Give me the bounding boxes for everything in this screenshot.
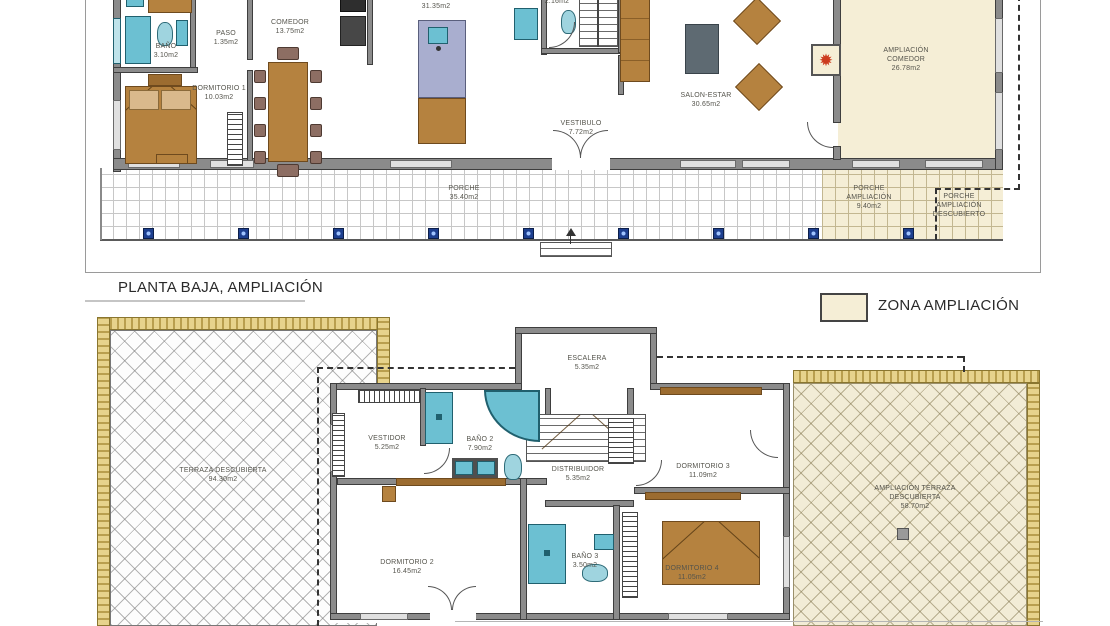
headboard bbox=[396, 478, 506, 486]
shower-drain bbox=[544, 550, 550, 556]
linen-closet bbox=[608, 418, 634, 464]
room-label-porche-ampliacion: PORCHE AMPLIACIÓN9.40m2 bbox=[836, 184, 902, 211]
rug bbox=[685, 24, 719, 74]
room-label-paso: PASO1.35m2 bbox=[200, 29, 252, 47]
entry-arrow-stem bbox=[570, 236, 571, 244]
room-label-vestibulo: VESTIBULO7.72m2 bbox=[536, 119, 626, 137]
porch-column bbox=[238, 228, 249, 239]
wall bbox=[515, 327, 522, 387]
chair bbox=[310, 124, 322, 137]
window bbox=[995, 92, 1003, 150]
nightstand bbox=[382, 486, 396, 502]
room-label-bano: BAÑO3.10m2 bbox=[140, 42, 192, 60]
window bbox=[113, 100, 121, 150]
wall bbox=[515, 327, 657, 334]
room-label-terraza: TERRAZA DESCUBIERTA94.30m2 bbox=[146, 466, 300, 484]
headboard bbox=[660, 387, 762, 395]
room-label-bano2: BAÑO 27.90m2 bbox=[452, 435, 508, 453]
terrace-balustrade bbox=[793, 370, 1040, 383]
entry-arrow-icon bbox=[566, 228, 576, 236]
room-label-comedor: COMEDOR13.75m2 bbox=[254, 18, 326, 36]
room-label-aseo: 2.16m2 bbox=[536, 0, 578, 6]
island-tap bbox=[436, 46, 441, 51]
porch-column bbox=[808, 228, 819, 239]
chair bbox=[310, 97, 322, 110]
chair bbox=[310, 151, 322, 164]
window bbox=[390, 160, 452, 168]
bed-partial bbox=[148, 0, 192, 13]
wall bbox=[541, 0, 547, 55]
ampliacion-dashed-line bbox=[963, 356, 965, 372]
ampliacion-dashed-line bbox=[657, 356, 963, 358]
bench bbox=[156, 154, 188, 164]
wall bbox=[541, 48, 624, 54]
room-label-dormitorio1: DORMITORIO 110.03m2 bbox=[180, 84, 258, 102]
wall bbox=[545, 500, 634, 507]
window bbox=[742, 160, 790, 168]
porch-column bbox=[618, 228, 629, 239]
bath-fixture bbox=[126, 0, 144, 7]
window bbox=[113, 18, 121, 64]
room-label-cocina-comedor: COCINA-COMEDOR31.35m2 bbox=[390, 0, 482, 11]
ampliacion-dashed-line bbox=[1018, 0, 1020, 190]
window bbox=[925, 160, 983, 168]
ampliacion-dashed-line bbox=[317, 367, 319, 626]
chair bbox=[277, 47, 299, 60]
room-label-distribuidor: DISTRIBUIDOR5.35m2 bbox=[544, 465, 612, 483]
wall bbox=[367, 0, 373, 65]
porch-column bbox=[903, 228, 914, 239]
chair bbox=[254, 151, 266, 164]
room-label-escalera: ESCALERA5.35m2 bbox=[556, 354, 618, 372]
kitchen-appliance bbox=[340, 0, 366, 12]
sink-bano3 bbox=[594, 534, 614, 550]
porch-column bbox=[713, 228, 724, 239]
closet-rail bbox=[358, 390, 420, 403]
legend-swatch bbox=[820, 293, 868, 322]
room-label-salon-estar: SALON-ESTAR30.65m2 bbox=[670, 91, 742, 109]
stair-rail bbox=[597, 0, 599, 47]
toilet-bano2 bbox=[504, 454, 522, 480]
room-label-vestidor: VESTIDOR5.25m2 bbox=[360, 434, 414, 452]
ampliacion-dashed-line bbox=[935, 188, 1020, 190]
chair bbox=[254, 124, 266, 137]
wardrobe bbox=[227, 112, 243, 166]
wall bbox=[833, 75, 841, 123]
window bbox=[852, 160, 900, 168]
headboard bbox=[645, 492, 741, 500]
ground-floor-plan: ✹ BAÑO3.10m2 PASO1.35m2 DORMITORIO 110.0… bbox=[0, 0, 1110, 78]
wall bbox=[833, 146, 841, 160]
island-sink bbox=[428, 27, 448, 44]
balcony-door-opening bbox=[430, 613, 476, 620]
room-label-porche: PORCHE35.40m2 bbox=[428, 184, 500, 202]
room-label-dormitorio3: DORMITORIO 311.09m2 bbox=[662, 462, 744, 480]
window bbox=[680, 160, 736, 168]
porch-column bbox=[428, 228, 439, 239]
closet-dormitorio4 bbox=[622, 512, 638, 598]
wall bbox=[520, 478, 527, 620]
window bbox=[995, 18, 1003, 73]
chair bbox=[277, 164, 299, 177]
porch-column bbox=[333, 228, 344, 239]
window bbox=[668, 613, 728, 620]
porch-column bbox=[523, 228, 534, 239]
wall bbox=[833, 0, 841, 47]
ampliacion-dashed-line bbox=[317, 367, 515, 369]
dining-table bbox=[268, 62, 308, 162]
chair bbox=[310, 70, 322, 83]
fridge bbox=[514, 8, 538, 40]
porch-left-line bbox=[100, 168, 102, 240]
shower-drain bbox=[436, 414, 442, 420]
sink-basin bbox=[477, 461, 495, 475]
fireplace-icon: ✹ bbox=[811, 44, 841, 76]
wall bbox=[330, 383, 522, 390]
kitchen-table bbox=[418, 98, 466, 144]
closet-rail bbox=[332, 413, 345, 477]
room-label-dormitorio4: DORMITORIO 411.05m2 bbox=[650, 564, 734, 582]
wall bbox=[113, 67, 198, 73]
legend-label: ZONA AMPLIACIÓN bbox=[878, 297, 1019, 314]
room-label-bano3: BAÑO 33.50m2 bbox=[560, 552, 610, 570]
chair bbox=[254, 70, 266, 83]
terrace-balustrade bbox=[1027, 383, 1040, 626]
entry-steps bbox=[540, 242, 612, 257]
window bbox=[783, 536, 790, 588]
dresser bbox=[148, 74, 182, 86]
sofa bbox=[620, 0, 650, 82]
sheet-bottom-line bbox=[455, 621, 1043, 622]
pillow bbox=[129, 90, 159, 110]
terrace-drain bbox=[897, 528, 909, 540]
wall bbox=[613, 505, 620, 620]
room-label-dormitorio2: DORMITORIO 216.45m2 bbox=[366, 558, 448, 576]
window bbox=[360, 613, 408, 620]
room-label-ampliacion-terraza: AMPLIACIÓN TERRAZA DESCUBIERTA58.70m2 bbox=[858, 484, 972, 511]
kitchen-stove bbox=[340, 16, 366, 46]
terrace-balustrade bbox=[97, 317, 390, 330]
ampliacion-comedor-zone bbox=[838, 0, 998, 162]
sink-basin bbox=[455, 461, 473, 475]
ground-floor-title: PLANTA BAJA, AMPLIACIÓN bbox=[118, 279, 323, 296]
room-label-ampliacion-comedor: AMPLIACIÓN COMEDOR26.78m2 bbox=[870, 46, 942, 73]
floorplan-sheet: ✹ BAÑO3.10m2 PASO1.35m2 DORMITORIO 110.0… bbox=[0, 0, 1110, 626]
front-door-opening bbox=[552, 158, 610, 170]
porch-column bbox=[143, 228, 154, 239]
sheet-divider-line bbox=[85, 300, 305, 302]
terrace-balustrade bbox=[97, 317, 110, 626]
terrace-balustrade bbox=[377, 317, 390, 385]
porch-edge-line bbox=[100, 239, 1003, 241]
wall bbox=[650, 327, 657, 387]
room-label-porche-descubierto: PORCHE AMPLIACIÓN DESCUBIERTO bbox=[926, 192, 992, 219]
